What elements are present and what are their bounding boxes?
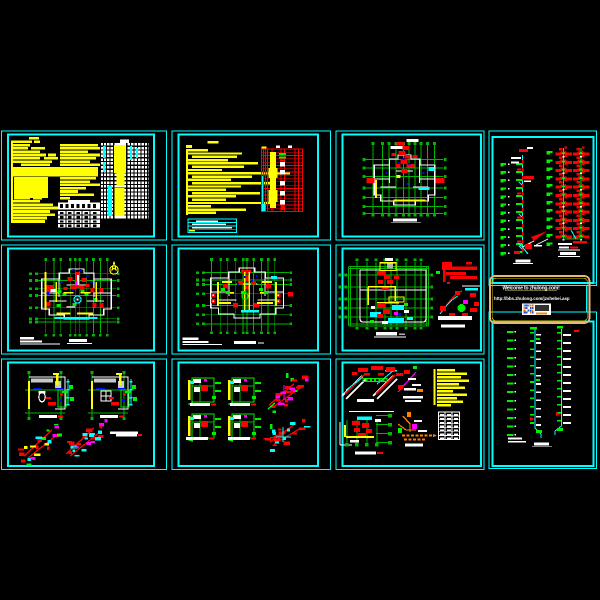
svg-text:http://bbs.zhulong.com/jzshebe: http://bbs.zhulong.com/jzshebei.asp (494, 296, 570, 301)
